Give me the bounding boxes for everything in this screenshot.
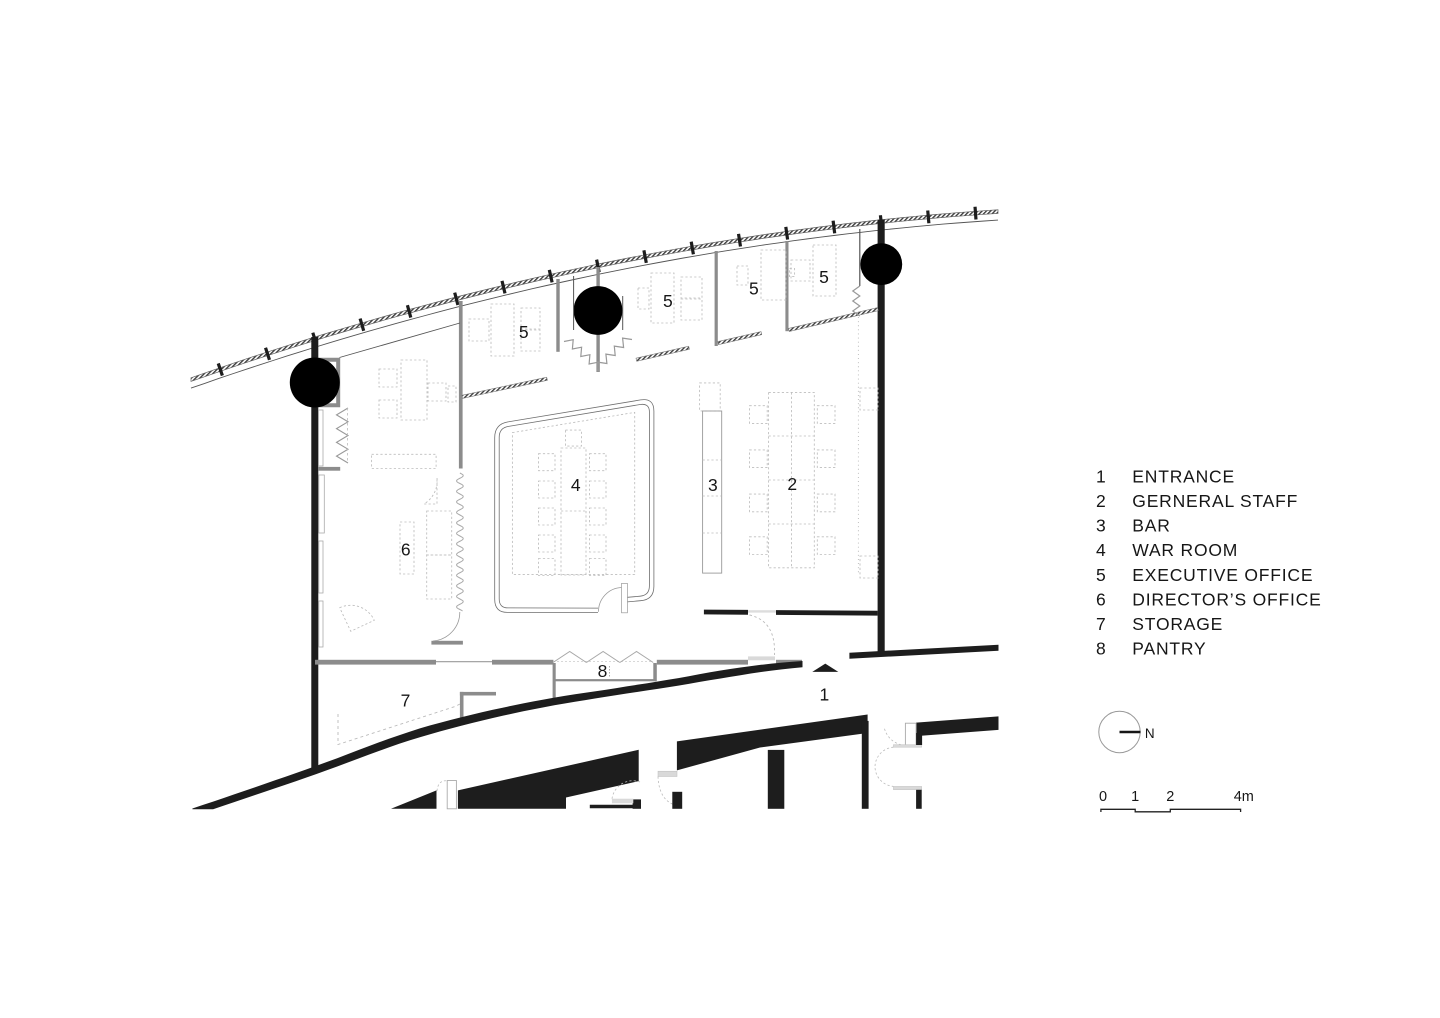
svg-text:8: 8: [1096, 639, 1107, 659]
svg-text:6: 6: [1096, 589, 1107, 609]
svg-text:7: 7: [1096, 614, 1107, 634]
svg-text:8: 8: [598, 661, 608, 681]
svg-text:2: 2: [1096, 491, 1107, 511]
svg-text:3: 3: [1096, 516, 1107, 536]
svg-text:5: 5: [819, 267, 829, 287]
svg-text:7: 7: [401, 690, 411, 710]
svg-text:0: 0: [1099, 789, 1107, 805]
svg-text:WAR ROOM: WAR ROOM: [1132, 540, 1238, 560]
svg-text:EXECUTIVE OFFICE: EXECUTIVE OFFICE: [1132, 565, 1313, 585]
svg-text:DIRECTOR’S OFFICE: DIRECTOR’S OFFICE: [1132, 589, 1321, 609]
svg-text:4m: 4m: [1234, 789, 1254, 805]
svg-text:ENTRANCE: ENTRANCE: [1132, 467, 1235, 487]
svg-text:N: N: [1145, 726, 1155, 741]
svg-text:5: 5: [749, 279, 759, 299]
svg-text:BAR: BAR: [1132, 516, 1170, 536]
svg-text:6: 6: [401, 540, 411, 560]
svg-text:3: 3: [708, 475, 718, 495]
svg-text:2: 2: [1166, 789, 1174, 805]
svg-text:5: 5: [519, 322, 529, 342]
svg-text:4: 4: [1096, 540, 1107, 560]
svg-text:STORAGE: STORAGE: [1132, 614, 1223, 634]
svg-text:PANTRY: PANTRY: [1132, 639, 1206, 659]
svg-text:2: 2: [787, 474, 797, 494]
svg-text:5: 5: [1096, 565, 1107, 585]
svg-text:5: 5: [663, 291, 673, 311]
svg-text:1: 1: [820, 685, 830, 705]
svg-text:1: 1: [1096, 467, 1107, 487]
svg-text:4: 4: [571, 475, 581, 495]
svg-text:1: 1: [1131, 789, 1139, 805]
svg-text:GERNERAL STAFF: GERNERAL STAFF: [1132, 491, 1298, 511]
